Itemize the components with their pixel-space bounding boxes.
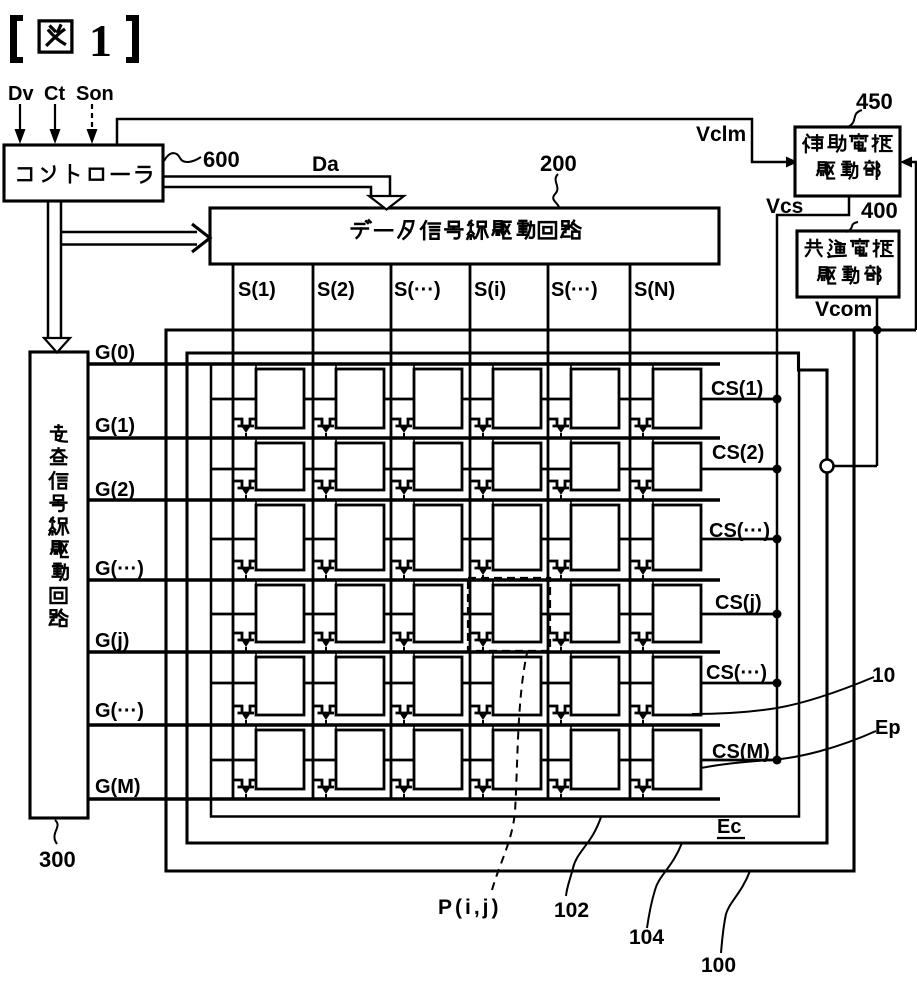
svg-text:CS(···): CS(···) xyxy=(706,662,767,684)
svg-text:400: 400 xyxy=(861,198,898,223)
svg-text:Dv: Dv xyxy=(8,83,34,105)
svg-text:CS(2): CS(2) xyxy=(712,442,764,464)
svg-text:Vclm: Vclm xyxy=(696,123,746,146)
svg-text:10: 10 xyxy=(872,664,895,687)
svg-text:CS(M): CS(M) xyxy=(712,741,770,763)
svg-text:G(···): G(···) xyxy=(95,700,144,722)
svg-text:G(1): G(1) xyxy=(95,415,135,437)
svg-text:S(i): S(i) xyxy=(474,279,506,301)
svg-text:Ep: Ep xyxy=(875,717,901,739)
svg-text:P(i,j): P(i,j) xyxy=(438,896,502,919)
svg-text:G(M): G(M) xyxy=(95,776,141,798)
svg-text:104: 104 xyxy=(629,926,664,949)
svg-text:100: 100 xyxy=(701,954,736,977)
svg-text:CS(j): CS(j) xyxy=(715,592,762,614)
svg-text:S(···): S(···) xyxy=(551,279,598,301)
svg-text:Vcom: Vcom xyxy=(815,298,872,321)
svg-text:200: 200 xyxy=(540,151,577,176)
svg-text:G(0): G(0) xyxy=(95,342,135,364)
svg-text:G(j): G(j) xyxy=(95,630,129,652)
svg-text:G(···): G(···) xyxy=(95,558,144,580)
svg-text:300: 300 xyxy=(39,847,76,872)
svg-text:S(N): S(N) xyxy=(634,279,675,301)
svg-text:Vcs: Vcs xyxy=(766,195,803,218)
svg-text:S(2): S(2) xyxy=(317,279,355,301)
svg-text:Da: Da xyxy=(312,153,339,176)
svg-text:G(2): G(2) xyxy=(95,479,135,501)
svg-text:CS(···): CS(···) xyxy=(709,520,770,542)
svg-text:1: 1 xyxy=(89,15,112,66)
svg-text:600: 600 xyxy=(203,147,240,172)
svg-text:Ct: Ct xyxy=(44,83,65,105)
svg-text:102: 102 xyxy=(554,899,589,922)
svg-text:450: 450 xyxy=(856,89,893,114)
svg-text:S(···): S(···) xyxy=(394,279,441,301)
svg-text:Son: Son xyxy=(76,83,114,105)
svg-text:Ec: Ec xyxy=(717,816,741,838)
svg-text:CS(1): CS(1) xyxy=(711,378,763,400)
svg-text:S(1): S(1) xyxy=(238,279,276,301)
